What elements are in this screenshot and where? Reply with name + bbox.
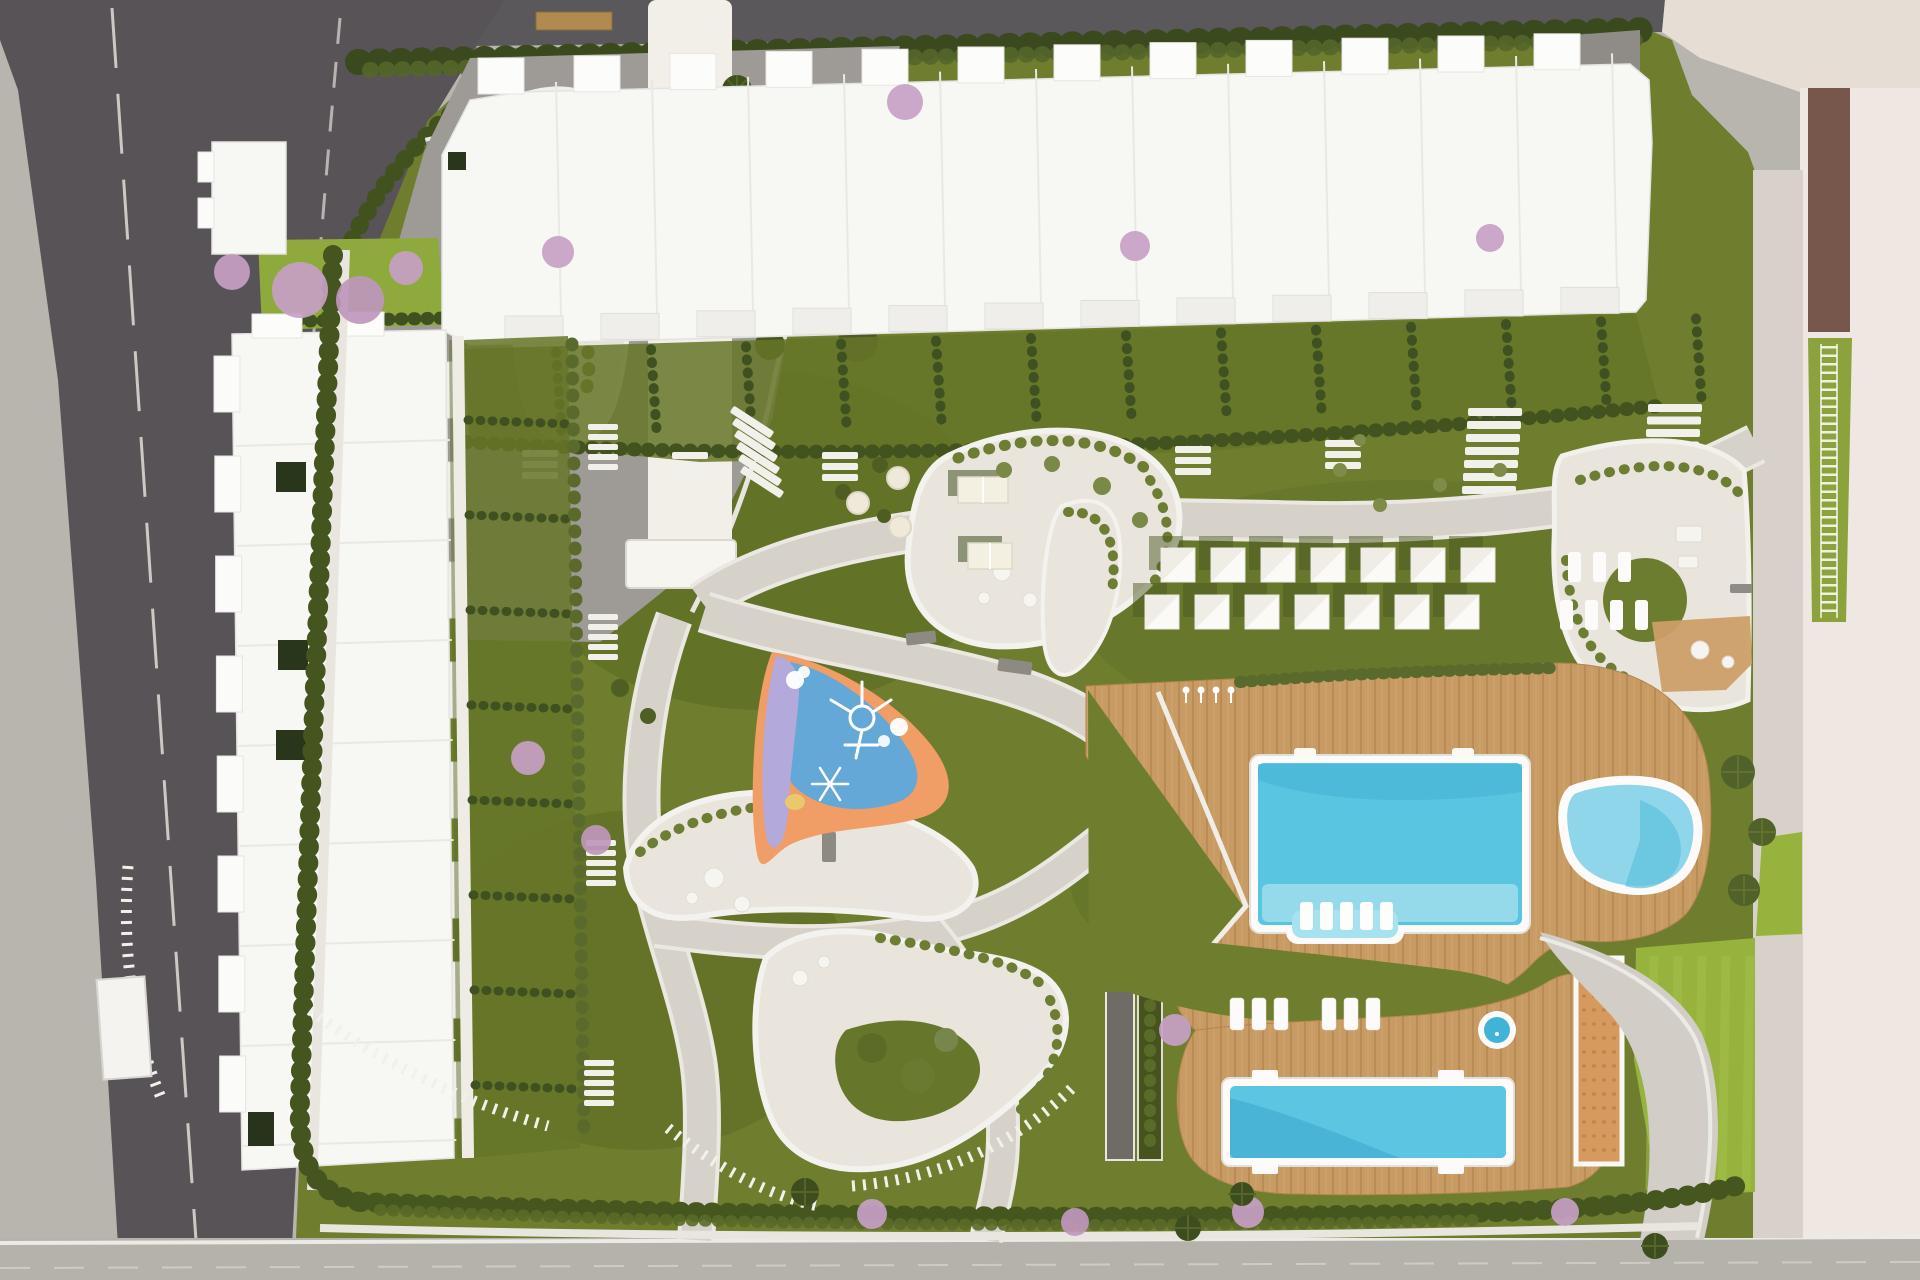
lounger (1230, 998, 1244, 1030)
steps-group (1175, 468, 1211, 475)
top-building-roofbox-wrap (1438, 36, 1484, 72)
shower-post-wrap (1228, 687, 1235, 694)
steps-group (822, 463, 858, 470)
stair-flight (1464, 460, 1518, 468)
top-building-terrace (1561, 287, 1619, 313)
in-pool-lounger-wrap (1340, 902, 1353, 930)
lounger-wrap (1560, 600, 1573, 630)
pink-tree (1551, 1198, 1579, 1226)
left-steps-wrap (588, 434, 618, 440)
pink-tree (511, 741, 545, 775)
left-building-balcony (216, 556, 242, 612)
left-plot-divider-wrap (474, 990, 574, 994)
lounger (1322, 998, 1336, 1030)
island-tree (901, 1059, 935, 1093)
left-building-balcony (217, 756, 243, 812)
boulder (818, 956, 830, 968)
left-steps-wrap (588, 444, 618, 450)
left-steps (584, 1080, 614, 1086)
stair-flight-wrap (1647, 417, 1701, 425)
in-pool-lounger-wrap (1380, 902, 1393, 930)
left-steps (588, 654, 618, 660)
left-plot-divider-wrap (471, 705, 571, 709)
lawn-stripe-wrap (1722, 956, 1726, 1190)
left-steps (588, 424, 618, 430)
top-building-roofbox-wrap (1054, 45, 1100, 81)
lounger (1610, 600, 1623, 630)
left-building-balcony (214, 356, 240, 412)
top-building-roofbox-wrap (478, 58, 524, 94)
left-plot-divider-wrap (475, 1085, 575, 1089)
shower-post (1183, 687, 1190, 694)
pink-tree (1476, 224, 1504, 252)
picnic-table-shade-tree (872, 457, 888, 473)
left-building-balcony-wrap (217, 756, 243, 812)
left-building-balcony (216, 656, 242, 712)
lawn-stripe-wrap (1746, 956, 1750, 1190)
steps-group-wrap (822, 452, 858, 459)
steps-group (672, 452, 708, 459)
olive-tree (1044, 456, 1060, 472)
top-building-roofbox-wrap (766, 51, 812, 87)
lawn-stripe (1746, 956, 1750, 1190)
stair-flight (1465, 447, 1519, 455)
left-plot-divider-wrap (468, 420, 568, 424)
top-building-terrace (985, 303, 1043, 329)
pink-tree (336, 276, 384, 324)
left-steps (584, 1060, 614, 1066)
in-pool-lounger (1340, 902, 1353, 930)
left-steps-wrap (588, 644, 618, 650)
pink-tree (389, 251, 423, 285)
left-plot-divider-wrap (472, 800, 572, 804)
left-building-balcony-wrap (218, 856, 244, 912)
stair-flight (1468, 408, 1522, 416)
left-building-balcony (220, 1056, 246, 1112)
top-building-roofbox (1054, 45, 1100, 81)
top-building-roofbox-wrap (862, 49, 908, 85)
play-climber (798, 666, 810, 678)
steps-group-wrap (1175, 468, 1211, 475)
wood-fence (536, 12, 612, 30)
pink-tree (214, 254, 250, 290)
olive-tree (996, 462, 1012, 478)
left-plot-divider (469, 515, 569, 519)
left-building-balcony (215, 456, 241, 512)
stair-flight-wrap (1468, 408, 1522, 416)
left-building-roofbox-wrap (252, 314, 302, 338)
lounger-wrap (1344, 998, 1358, 1030)
top-building-roofbox (1342, 38, 1388, 74)
left-building-lightwell (248, 1112, 274, 1146)
left-steps-wrap (584, 1080, 614, 1086)
shrub-tree (640, 708, 656, 724)
top-building-roofbox-wrap (670, 54, 716, 90)
left-steps (588, 614, 618, 620)
lounger (1560, 600, 1573, 630)
top-building-roofbox-wrap (574, 56, 620, 92)
steps-group (1325, 451, 1361, 458)
in-pool-lounger (1300, 902, 1313, 930)
top-building-roofbox (478, 58, 524, 94)
top-building-roofbox (670, 54, 716, 90)
boulder (792, 970, 808, 986)
steps-group-wrap (822, 474, 858, 481)
left-steps-wrap (586, 870, 616, 876)
lounger (1585, 600, 1598, 630)
steps-group (1175, 457, 1211, 464)
pink-tree (1120, 231, 1150, 261)
top-building-terrace (1369, 293, 1427, 319)
playground-yellow (785, 794, 805, 810)
olive-tree (1373, 498, 1387, 512)
pink-tree (1061, 1208, 1089, 1236)
top-building-roofbox (862, 49, 908, 85)
stair-flight-wrap (1646, 429, 1700, 437)
top-building-lightwell (448, 152, 466, 170)
left-steps-wrap (584, 1070, 614, 1076)
steps-group-wrap (672, 452, 708, 459)
stair-flight (1467, 421, 1521, 429)
left-steps-wrap (588, 424, 618, 430)
shower-post-wrap (1198, 687, 1205, 694)
annex-balcony (198, 198, 214, 228)
in-pool-lounger-wrap (1300, 902, 1313, 930)
shower-post (1213, 687, 1220, 694)
lawn-stripe (1722, 956, 1726, 1190)
top-building-roofbox (574, 56, 620, 92)
top-building-terrace-wrap (1561, 287, 1619, 313)
left-steps-wrap (588, 634, 618, 640)
boulder (686, 892, 698, 904)
right-boundary-path (1753, 170, 1803, 1238)
lap-pool-step (1438, 1164, 1464, 1174)
pink-tree (272, 262, 328, 318)
left-steps (588, 464, 618, 470)
stair-flight-wrap (1467, 421, 1521, 429)
left-building-balcony-wrap (214, 356, 240, 412)
boulder (704, 868, 724, 888)
stair-flight (1466, 434, 1520, 442)
annex-block (212, 142, 286, 254)
top-building-terrace-wrap (793, 308, 851, 334)
left-steps (588, 444, 618, 450)
stair-flight (1648, 404, 1702, 412)
lounger-wrap (1593, 552, 1606, 582)
garden-table (1676, 526, 1702, 542)
stair-flight (1647, 417, 1701, 425)
lounger-wrap (1635, 600, 1648, 630)
top-building-terrace-wrap (1369, 293, 1427, 319)
top-building-roofbox (1246, 40, 1292, 76)
left-steps (584, 1100, 614, 1106)
round-picnic-table (889, 516, 911, 538)
olive-tree (1433, 478, 1447, 492)
top-building-roofbox (1150, 43, 1196, 79)
left-steps (586, 860, 616, 866)
shower-post-wrap (1213, 687, 1220, 694)
left-plot-divider (473, 895, 573, 899)
left-building-roofbox (252, 314, 302, 338)
steps-group-wrap (822, 463, 858, 470)
left-steps-wrap (586, 880, 616, 886)
top-building-terrace (1465, 290, 1523, 316)
left-building-balcony-wrap (220, 1056, 246, 1112)
lounger-wrap (1274, 998, 1288, 1030)
steps-group (672, 463, 708, 470)
site-plan-svg (0, 0, 1920, 1280)
bench (1730, 584, 1752, 593)
steps-group-wrap (1325, 451, 1361, 458)
lounger-wrap (1366, 998, 1380, 1030)
lounger (1344, 998, 1358, 1030)
top-building-terrace (601, 313, 659, 339)
left-steps-wrap (588, 654, 618, 660)
aerial-site-plan-render (0, 0, 1920, 1280)
parasol (1691, 641, 1709, 659)
left-steps-wrap (588, 454, 618, 460)
lounger (1635, 600, 1648, 630)
steps-group-wrap (672, 463, 708, 470)
left-plot-divider (474, 990, 574, 994)
stair-flight-wrap (1465, 447, 1519, 455)
pink-tree (887, 84, 923, 120)
top-building-terrace-wrap (1465, 290, 1523, 316)
lounger (1274, 998, 1288, 1030)
neighbor-roof-brown (1808, 88, 1850, 332)
picnic-table-shade-tree (877, 509, 891, 523)
left-plot-divider (475, 1085, 575, 1089)
left-steps (586, 870, 616, 876)
left-steps-wrap (584, 1100, 614, 1106)
olive-tree (1333, 463, 1347, 477)
pink-tree (857, 1199, 887, 1229)
boulder (978, 592, 990, 604)
in-pool-lounger (1380, 902, 1393, 930)
left-steps-wrap (588, 464, 618, 470)
top-building-roofbox (766, 51, 812, 87)
top-building-roofbox-wrap (1150, 43, 1196, 79)
left-building-balcony-wrap (216, 556, 242, 612)
boulder (734, 896, 750, 912)
left-steps-wrap (586, 860, 616, 866)
left-plot-divider-wrap (470, 610, 570, 614)
shrub-tree (611, 679, 629, 697)
top-building-terrace (1177, 298, 1235, 324)
bench (822, 832, 836, 862)
island-tree (857, 1033, 887, 1063)
left-plot-divider (470, 610, 570, 614)
parasol (1722, 656, 1734, 668)
shower-post (1198, 687, 1205, 694)
steps-group (1175, 446, 1211, 453)
play-climber (878, 735, 890, 747)
olive-tree (1354, 434, 1366, 446)
left-steps (588, 634, 618, 640)
shower-post (1228, 687, 1235, 694)
top-building-terrace (793, 308, 851, 334)
in-pool-lounger-wrap (1320, 902, 1333, 930)
white-shelter (97, 976, 152, 1079)
top-building-terrace-wrap (1177, 298, 1235, 324)
steps-group (822, 452, 858, 459)
left-steps (588, 644, 618, 650)
left-plot-divider (471, 705, 571, 709)
left-building-lightwell (276, 730, 306, 760)
left-building-balcony-wrap (216, 656, 242, 712)
steps-group-wrap (1175, 457, 1211, 464)
top-building-roofbox-wrap (1246, 40, 1292, 76)
top-building-terrace-wrap (697, 311, 755, 337)
steps-group (672, 474, 708, 481)
top-building-terrace-wrap (889, 306, 947, 332)
left-steps (588, 454, 618, 460)
pink-tree (542, 236, 574, 268)
top-building-roofbox (958, 47, 1004, 83)
stair-flight (1646, 429, 1700, 437)
left-steps-wrap (588, 614, 618, 620)
top-building-roofbox (1438, 36, 1484, 72)
olive-tree (1093, 477, 1111, 495)
lounger-wrap (1230, 998, 1244, 1030)
left-steps (584, 1070, 614, 1076)
lounger-wrap (1585, 600, 1598, 630)
lap-pool-step (1438, 1070, 1464, 1080)
garden-table (1678, 556, 1698, 568)
lounger-wrap (1568, 552, 1581, 582)
lounger (1252, 998, 1266, 1030)
in-pool-lounger-wrap (1360, 902, 1373, 930)
top-building-roofbox-wrap (1342, 38, 1388, 74)
round-pool-water (1484, 1017, 1510, 1043)
pool-rail (1294, 748, 1316, 757)
left-steps-wrap (584, 1060, 614, 1066)
left-steps (586, 880, 616, 886)
boulder (1023, 593, 1037, 607)
round-picnic-table (847, 492, 869, 514)
lap-pool-step (1252, 1070, 1278, 1080)
left-plot-divider-wrap (469, 515, 569, 519)
steps-group-wrap (1175, 446, 1211, 453)
lap-pool-step (1252, 1164, 1278, 1174)
left-steps (584, 1090, 614, 1096)
lounger-wrap (1322, 998, 1336, 1030)
stair-flight-wrap (1648, 404, 1702, 412)
pool-rail (1452, 748, 1474, 757)
top-building-terrace-wrap (601, 313, 659, 339)
pink-tree (1159, 1014, 1191, 1046)
left-building-balcony (219, 956, 245, 1012)
steps-group-wrap (672, 474, 708, 481)
top-building-terrace-wrap (1081, 300, 1139, 326)
left-building-lightwell (278, 640, 308, 670)
island-tree (934, 1028, 958, 1052)
in-pool-lounger (1320, 902, 1333, 930)
lounger-wrap (1252, 998, 1266, 1030)
annex-balcony (198, 152, 214, 182)
round-picnic-table (887, 467, 909, 489)
in-pool-lounger (1360, 902, 1373, 930)
top-building-terrace-wrap (1273, 295, 1331, 321)
left-steps (588, 624, 618, 630)
left-steps-wrap (588, 624, 618, 630)
left-building-balcony-wrap (219, 956, 245, 1012)
pink-tree (581, 825, 611, 855)
top-building-terrace (889, 306, 947, 332)
lounger-wrap (1618, 552, 1631, 582)
annex-balcony-wrap (198, 198, 214, 228)
lounger (1568, 552, 1581, 582)
olive-tree (1493, 463, 1507, 477)
left-building-lightwell (276, 462, 306, 492)
steps-group (822, 474, 858, 481)
stair-flight-wrap (1466, 434, 1520, 442)
stair-flight (1463, 473, 1517, 481)
olive-tree (1132, 512, 1148, 528)
lounger (1618, 552, 1631, 582)
stair-flight-wrap (1463, 473, 1517, 481)
top-building-terrace (1273, 295, 1331, 321)
left-plot-divider-wrap (473, 895, 573, 899)
left-building-balcony (218, 856, 244, 912)
top-building-terrace-wrap (985, 303, 1043, 329)
top-building-terrace (697, 311, 755, 337)
left-building-balcony-wrap (215, 456, 241, 512)
top-building-roofbox (1534, 34, 1580, 70)
left-steps (588, 434, 618, 440)
left-plot-divider (472, 800, 572, 804)
annex-balcony-wrap (198, 152, 214, 182)
left-steps-wrap (584, 1090, 614, 1096)
top-building-roofbox-wrap (1534, 34, 1580, 70)
lounger (1593, 552, 1606, 582)
play-climber (890, 718, 908, 736)
bright-lawn-upper (1756, 832, 1802, 936)
round-pool-glint (1495, 1032, 1499, 1036)
bottom-road (0, 1238, 1920, 1280)
lounger (1366, 998, 1380, 1030)
shower-post-wrap (1183, 687, 1190, 694)
stair-flight-wrap (1464, 460, 1518, 468)
top-building-roofbox-wrap (958, 47, 1004, 83)
top-building-terrace (1081, 300, 1139, 326)
left-plot-divider (468, 420, 568, 424)
lounger-wrap (1610, 600, 1623, 630)
